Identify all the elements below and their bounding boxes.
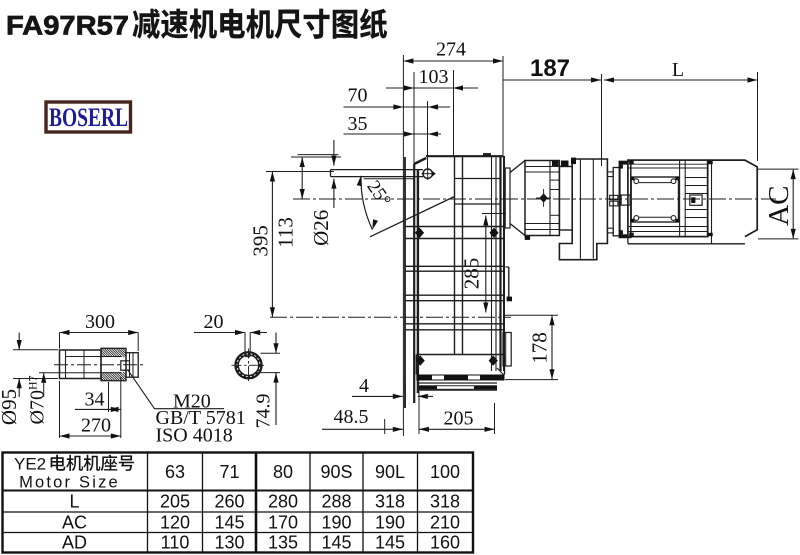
svg-text:90L: 90L bbox=[375, 462, 405, 482]
svg-text:100: 100 bbox=[430, 462, 460, 482]
svg-text:170: 170 bbox=[268, 513, 298, 533]
svg-text:BOSERL: BOSERL bbox=[49, 103, 128, 132]
svg-text:71: 71 bbox=[219, 462, 239, 482]
svg-text:145: 145 bbox=[321, 533, 351, 553]
svg-text:145: 145 bbox=[375, 533, 405, 553]
svg-text:178: 178 bbox=[528, 332, 552, 364]
svg-text:FA97R57: FA97R57 bbox=[6, 11, 129, 41]
svg-text:70: 70 bbox=[348, 85, 368, 107]
svg-text:130: 130 bbox=[214, 533, 244, 553]
svg-text:395: 395 bbox=[248, 225, 272, 257]
svg-text:160: 160 bbox=[430, 533, 460, 553]
svg-text:74.9: 74.9 bbox=[253, 394, 275, 429]
svg-text:63: 63 bbox=[165, 462, 185, 482]
svg-text:AC: AC bbox=[763, 186, 795, 226]
svg-text:190: 190 bbox=[321, 513, 351, 533]
svg-text:120: 120 bbox=[160, 513, 190, 533]
svg-text:300: 300 bbox=[85, 311, 115, 333]
svg-text:318: 318 bbox=[375, 492, 405, 512]
svg-text:48.5: 48.5 bbox=[334, 406, 369, 428]
svg-text:145: 145 bbox=[214, 513, 244, 533]
svg-text:35: 35 bbox=[348, 113, 368, 135]
svg-text:90S: 90S bbox=[320, 462, 352, 482]
svg-text:205: 205 bbox=[444, 408, 474, 430]
svg-text:20: 20 bbox=[204, 311, 224, 333]
svg-text:Motor Size: Motor Size bbox=[19, 474, 120, 492]
svg-text:L: L bbox=[672, 59, 684, 81]
svg-text:AD: AD bbox=[62, 533, 87, 553]
svg-text:260: 260 bbox=[214, 492, 244, 512]
svg-text:ISO 4018: ISO 4018 bbox=[156, 425, 233, 447]
svg-text:80: 80 bbox=[273, 462, 293, 482]
svg-text:110: 110 bbox=[161, 533, 190, 553]
svg-text:274: 274 bbox=[436, 39, 466, 61]
svg-text:Ø95: Ø95 bbox=[0, 389, 21, 425]
svg-text:280: 280 bbox=[268, 492, 298, 512]
svg-text:113: 113 bbox=[274, 217, 298, 248]
svg-text:288: 288 bbox=[321, 492, 351, 512]
svg-text:135: 135 bbox=[268, 533, 298, 553]
svg-text:210: 210 bbox=[430, 513, 460, 533]
svg-text:205: 205 bbox=[160, 492, 190, 512]
svg-text:YE2: YE2 bbox=[14, 455, 46, 474]
svg-text:190: 190 bbox=[375, 513, 405, 533]
svg-text:270: 270 bbox=[81, 415, 111, 437]
svg-text:L: L bbox=[69, 492, 79, 512]
svg-text:34: 34 bbox=[85, 389, 105, 411]
svg-text:103: 103 bbox=[419, 66, 449, 88]
svg-text:187: 187 bbox=[530, 55, 570, 82]
svg-text:Ø26: Ø26 bbox=[309, 210, 333, 246]
svg-text:4: 4 bbox=[359, 375, 369, 397]
svg-text:AC: AC bbox=[62, 513, 87, 533]
svg-text:318: 318 bbox=[430, 492, 460, 512]
